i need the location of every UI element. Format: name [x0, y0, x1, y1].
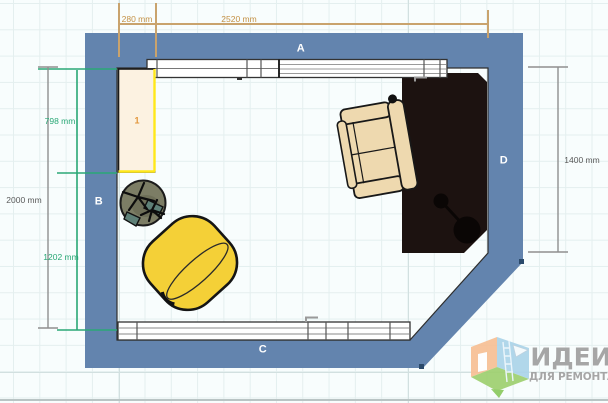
lamp-base[interactable] — [434, 194, 449, 209]
wall-label-c: C — [259, 345, 267, 356]
office-chair[interactable] — [121, 181, 166, 227]
lamp-shade[interactable] — [454, 217, 481, 244]
planner-canvas[interactable]: 280 mm 2520 mm 2000 mm 798 mm 1202 mm 14… — [0, 0, 608, 403]
dimension-label-top-offset: 280 mm — [122, 15, 153, 24]
wardrobe-number-badge: 1 — [134, 117, 139, 126]
floor-plan — [0, 0, 608, 403]
dimension-label-right-height: 1400 mm — [564, 156, 599, 165]
window-frame[interactable] — [118, 322, 410, 340]
wall-vertex-handle[interactable] — [519, 259, 524, 264]
dimension-label-left-upper: 798 mm — [45, 117, 76, 126]
wall-vertex-handle[interactable] — [419, 364, 424, 369]
wall-label-d: D — [500, 156, 508, 167]
watermark-title: ИДЕИ — [530, 345, 608, 370]
wall-label-a: A — [297, 44, 305, 55]
wall-label-b: B — [95, 197, 103, 208]
dimension-lines-right-gray — [528, 67, 568, 252]
window-handle-icon — [306, 318, 318, 323]
logo-cube-icon — [471, 337, 529, 398]
window-bottom[interactable] — [118, 318, 410, 341]
watermark-subtitle: ДЛЯ РЕМОНТА — [529, 372, 608, 383]
dimension-label-top-width: 2520 mm — [221, 15, 256, 24]
window-latch-dot — [237, 78, 242, 80]
dimension-label-left-lower: 1202 mm — [43, 253, 78, 262]
dimension-label-left-total: 2000 mm — [6, 196, 41, 205]
